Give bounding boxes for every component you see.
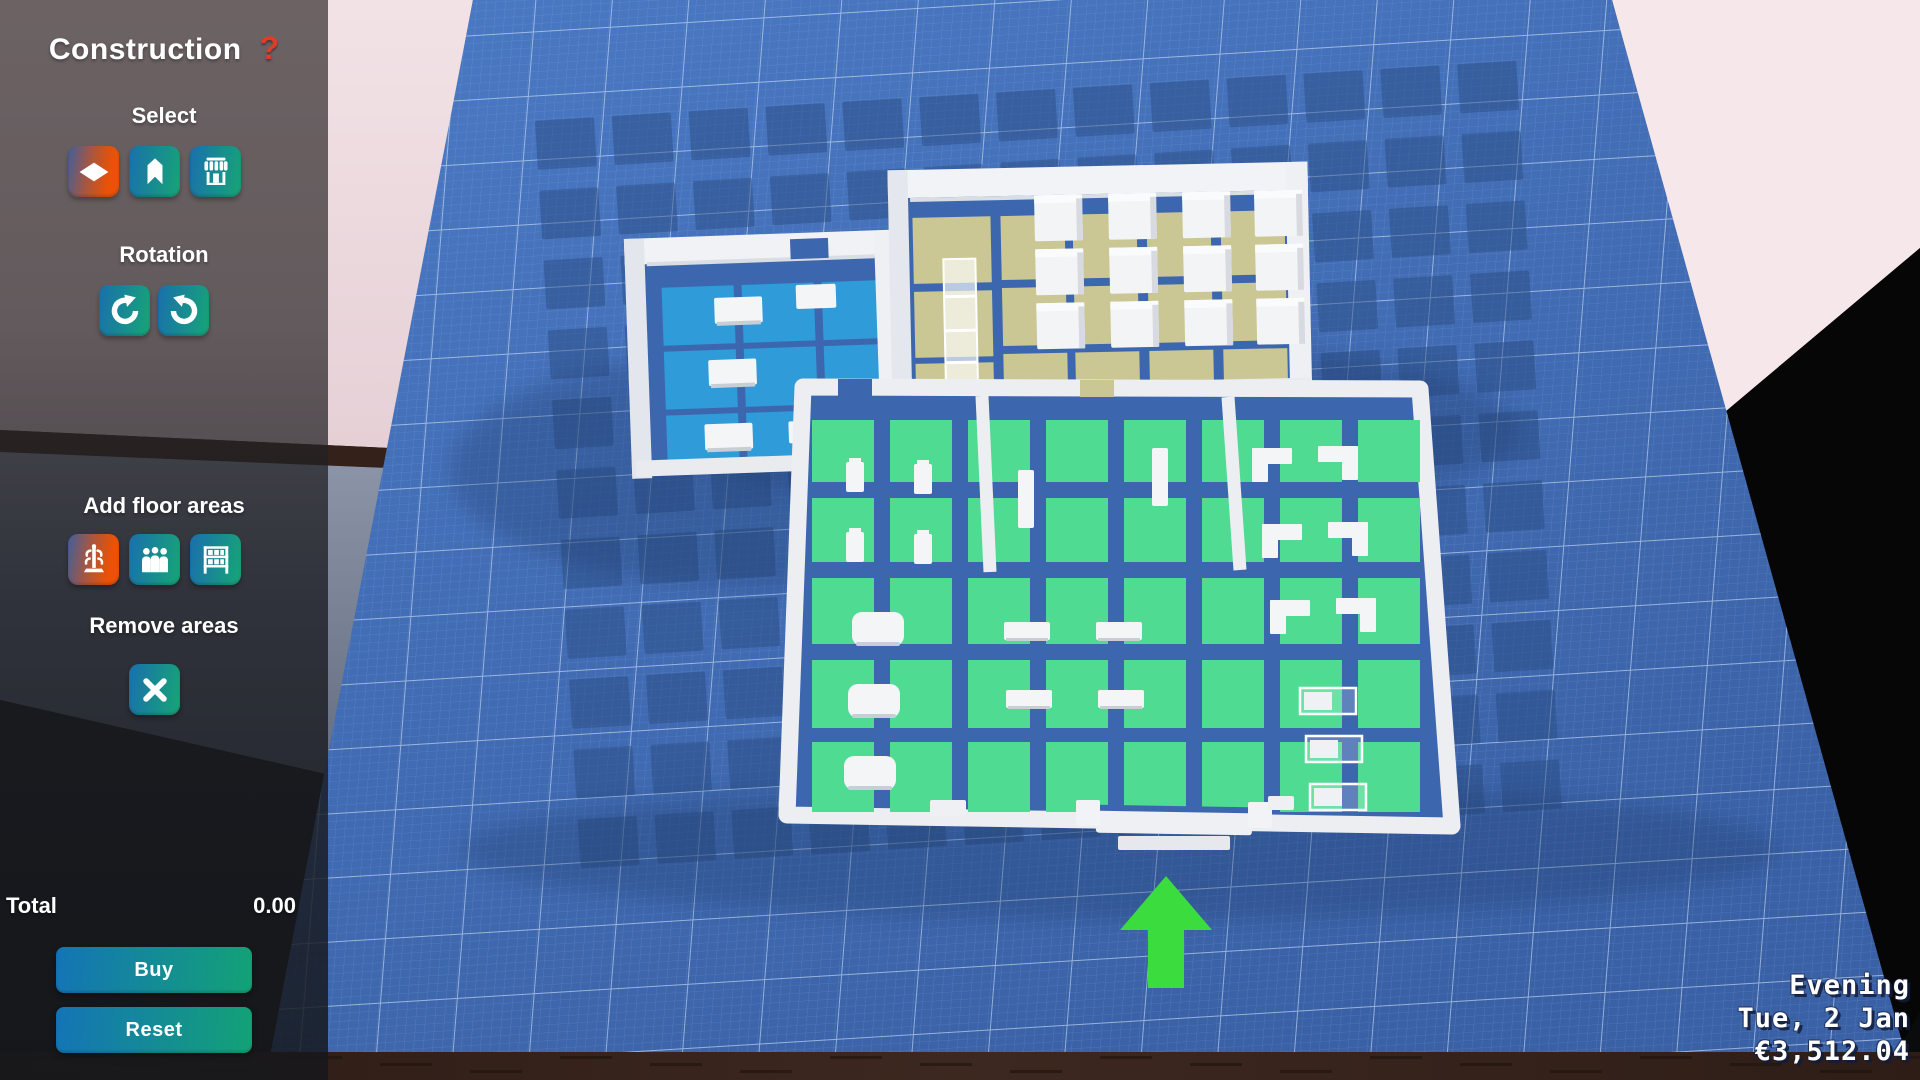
money-balance: €3,512.04	[1737, 1035, 1910, 1068]
help-icon[interactable]: ?	[260, 30, 280, 67]
remove-areas-label: Remove areas	[0, 613, 328, 639]
add-areas-button-row	[68, 534, 241, 585]
select-store-button[interactable]	[190, 146, 241, 197]
select-walls-button[interactable]	[129, 146, 180, 197]
add-floor-areas-label: Add floor areas	[0, 493, 328, 519]
total-value: 0.00	[253, 893, 296, 919]
shelving-area-icon-button[interactable]	[190, 534, 241, 585]
x-icon	[138, 673, 172, 707]
people-area-icon	[137, 542, 173, 578]
people-area-icon-button[interactable]	[129, 534, 180, 585]
remove-areas-button-row	[129, 664, 180, 715]
construction-panel: Construction ? Select	[0, 0, 328, 1080]
game-viewport: Construction ? Select	[0, 0, 1920, 1080]
date: Tue, 2 Jan	[1737, 1002, 1910, 1035]
panel-header: Construction ?	[0, 30, 328, 67]
select-section-label: Select	[0, 103, 328, 129]
rotation-button-row	[99, 285, 209, 336]
time-of-day: Evening	[1737, 969, 1910, 1002]
select-floor-button[interactable]	[68, 146, 119, 197]
panel-title: Construction	[49, 33, 242, 67]
rotate-ccw-button[interactable]	[99, 285, 150, 336]
store-icon	[198, 154, 234, 190]
select-button-row	[68, 146, 241, 197]
buy-button[interactable]: Buy	[56, 947, 252, 993]
walls-icon	[138, 155, 172, 189]
time-money-hud: Evening Tue, 2 Jan €3,512.04	[1737, 969, 1910, 1068]
floor-diamond-icon	[76, 154, 112, 190]
rotate-cw-icon	[167, 294, 201, 328]
room-tan-fridges[interactable]	[887, 162, 1312, 417]
room-green-shop-floor[interactable]	[787, 379, 1452, 850]
total-label: Total	[6, 893, 57, 919]
rotation-section-label: Rotation	[0, 242, 328, 268]
total-row: Total 0.00	[6, 893, 296, 919]
reset-button[interactable]: Reset	[56, 1007, 252, 1053]
add-clothing-area-button[interactable]	[68, 534, 119, 585]
remove-area-button[interactable]	[129, 664, 180, 715]
rotate-ccw-icon	[108, 294, 142, 328]
shelving-area-icon	[198, 542, 234, 578]
rotate-cw-button[interactable]	[158, 285, 209, 336]
coat-rack-icon	[76, 542, 112, 578]
